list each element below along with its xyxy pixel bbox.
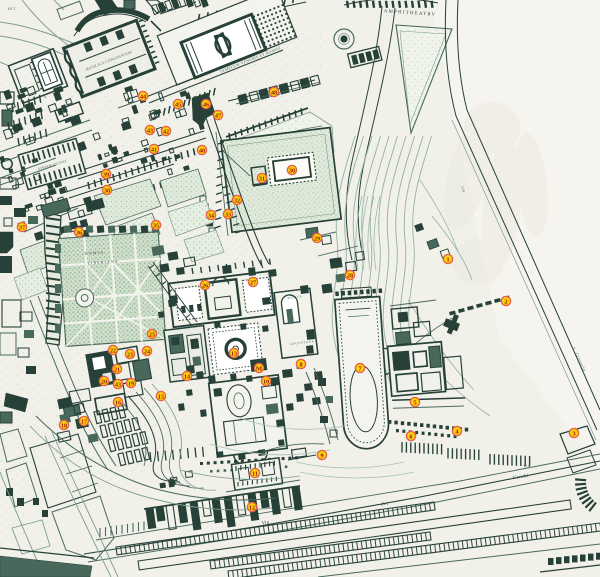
svg-text:36: 36 <box>76 230 82 236</box>
svg-text:39: 39 <box>103 172 109 178</box>
svg-text:13: 13 <box>231 351 237 357</box>
svg-text:22: 22 <box>110 348 116 354</box>
svg-text:47: 47 <box>215 113 221 119</box>
svg-text:41: 41 <box>151 147 157 153</box>
svg-text:31: 31 <box>259 176 265 182</box>
svg-text:26: 26 <box>202 283 208 289</box>
svg-text:11: 11 <box>252 471 258 477</box>
svg-text:43: 43 <box>147 128 153 134</box>
svg-text:32: 32 <box>234 198 240 204</box>
svg-text:21: 21 <box>114 367 120 373</box>
svg-text:12: 12 <box>249 505 255 511</box>
svg-text:16: 16 <box>115 400 121 406</box>
svg-text:34: 34 <box>208 213 214 219</box>
svg-text:38: 38 <box>104 188 110 194</box>
svg-text:10: 10 <box>263 379 269 385</box>
svg-text:14: 14 <box>184 374 190 380</box>
svg-text:25: 25 <box>149 332 155 338</box>
svg-text:35: 35 <box>153 223 159 229</box>
svg-text:17: 17 <box>81 419 87 425</box>
svg-text:40: 40 <box>199 148 205 154</box>
svg-text:1: 1 <box>446 256 449 263</box>
svg-text:33: 33 <box>225 212 231 218</box>
svg-text:23: 23 <box>127 352 133 358</box>
svg-text:19: 19 <box>128 381 134 387</box>
svg-text:37: 37 <box>19 225 25 231</box>
svg-text:29: 29 <box>314 236 320 242</box>
svg-text:46: 46 <box>203 102 209 108</box>
svg-text:24: 24 <box>144 349 150 355</box>
svg-text:28: 28 <box>347 273 353 279</box>
svg-text:20: 20 <box>101 379 107 385</box>
svg-text:15: 15 <box>158 394 164 400</box>
svg-text:27: 27 <box>250 280 256 286</box>
svg-text:30: 30 <box>289 168 295 174</box>
svg-text:18: 18 <box>61 423 67 429</box>
svg-text:48: 48 <box>271 90 277 96</box>
svg-text:45: 45 <box>175 102 181 108</box>
svg-text:43: 43 <box>115 382 121 388</box>
svg-text:Via: Via <box>523 463 530 469</box>
svg-text:M: M <box>256 365 263 372</box>
svg-text:42: 42 <box>163 129 169 135</box>
svg-text:44: 44 <box>140 94 146 100</box>
svg-text:ori: ori <box>8 7 15 12</box>
